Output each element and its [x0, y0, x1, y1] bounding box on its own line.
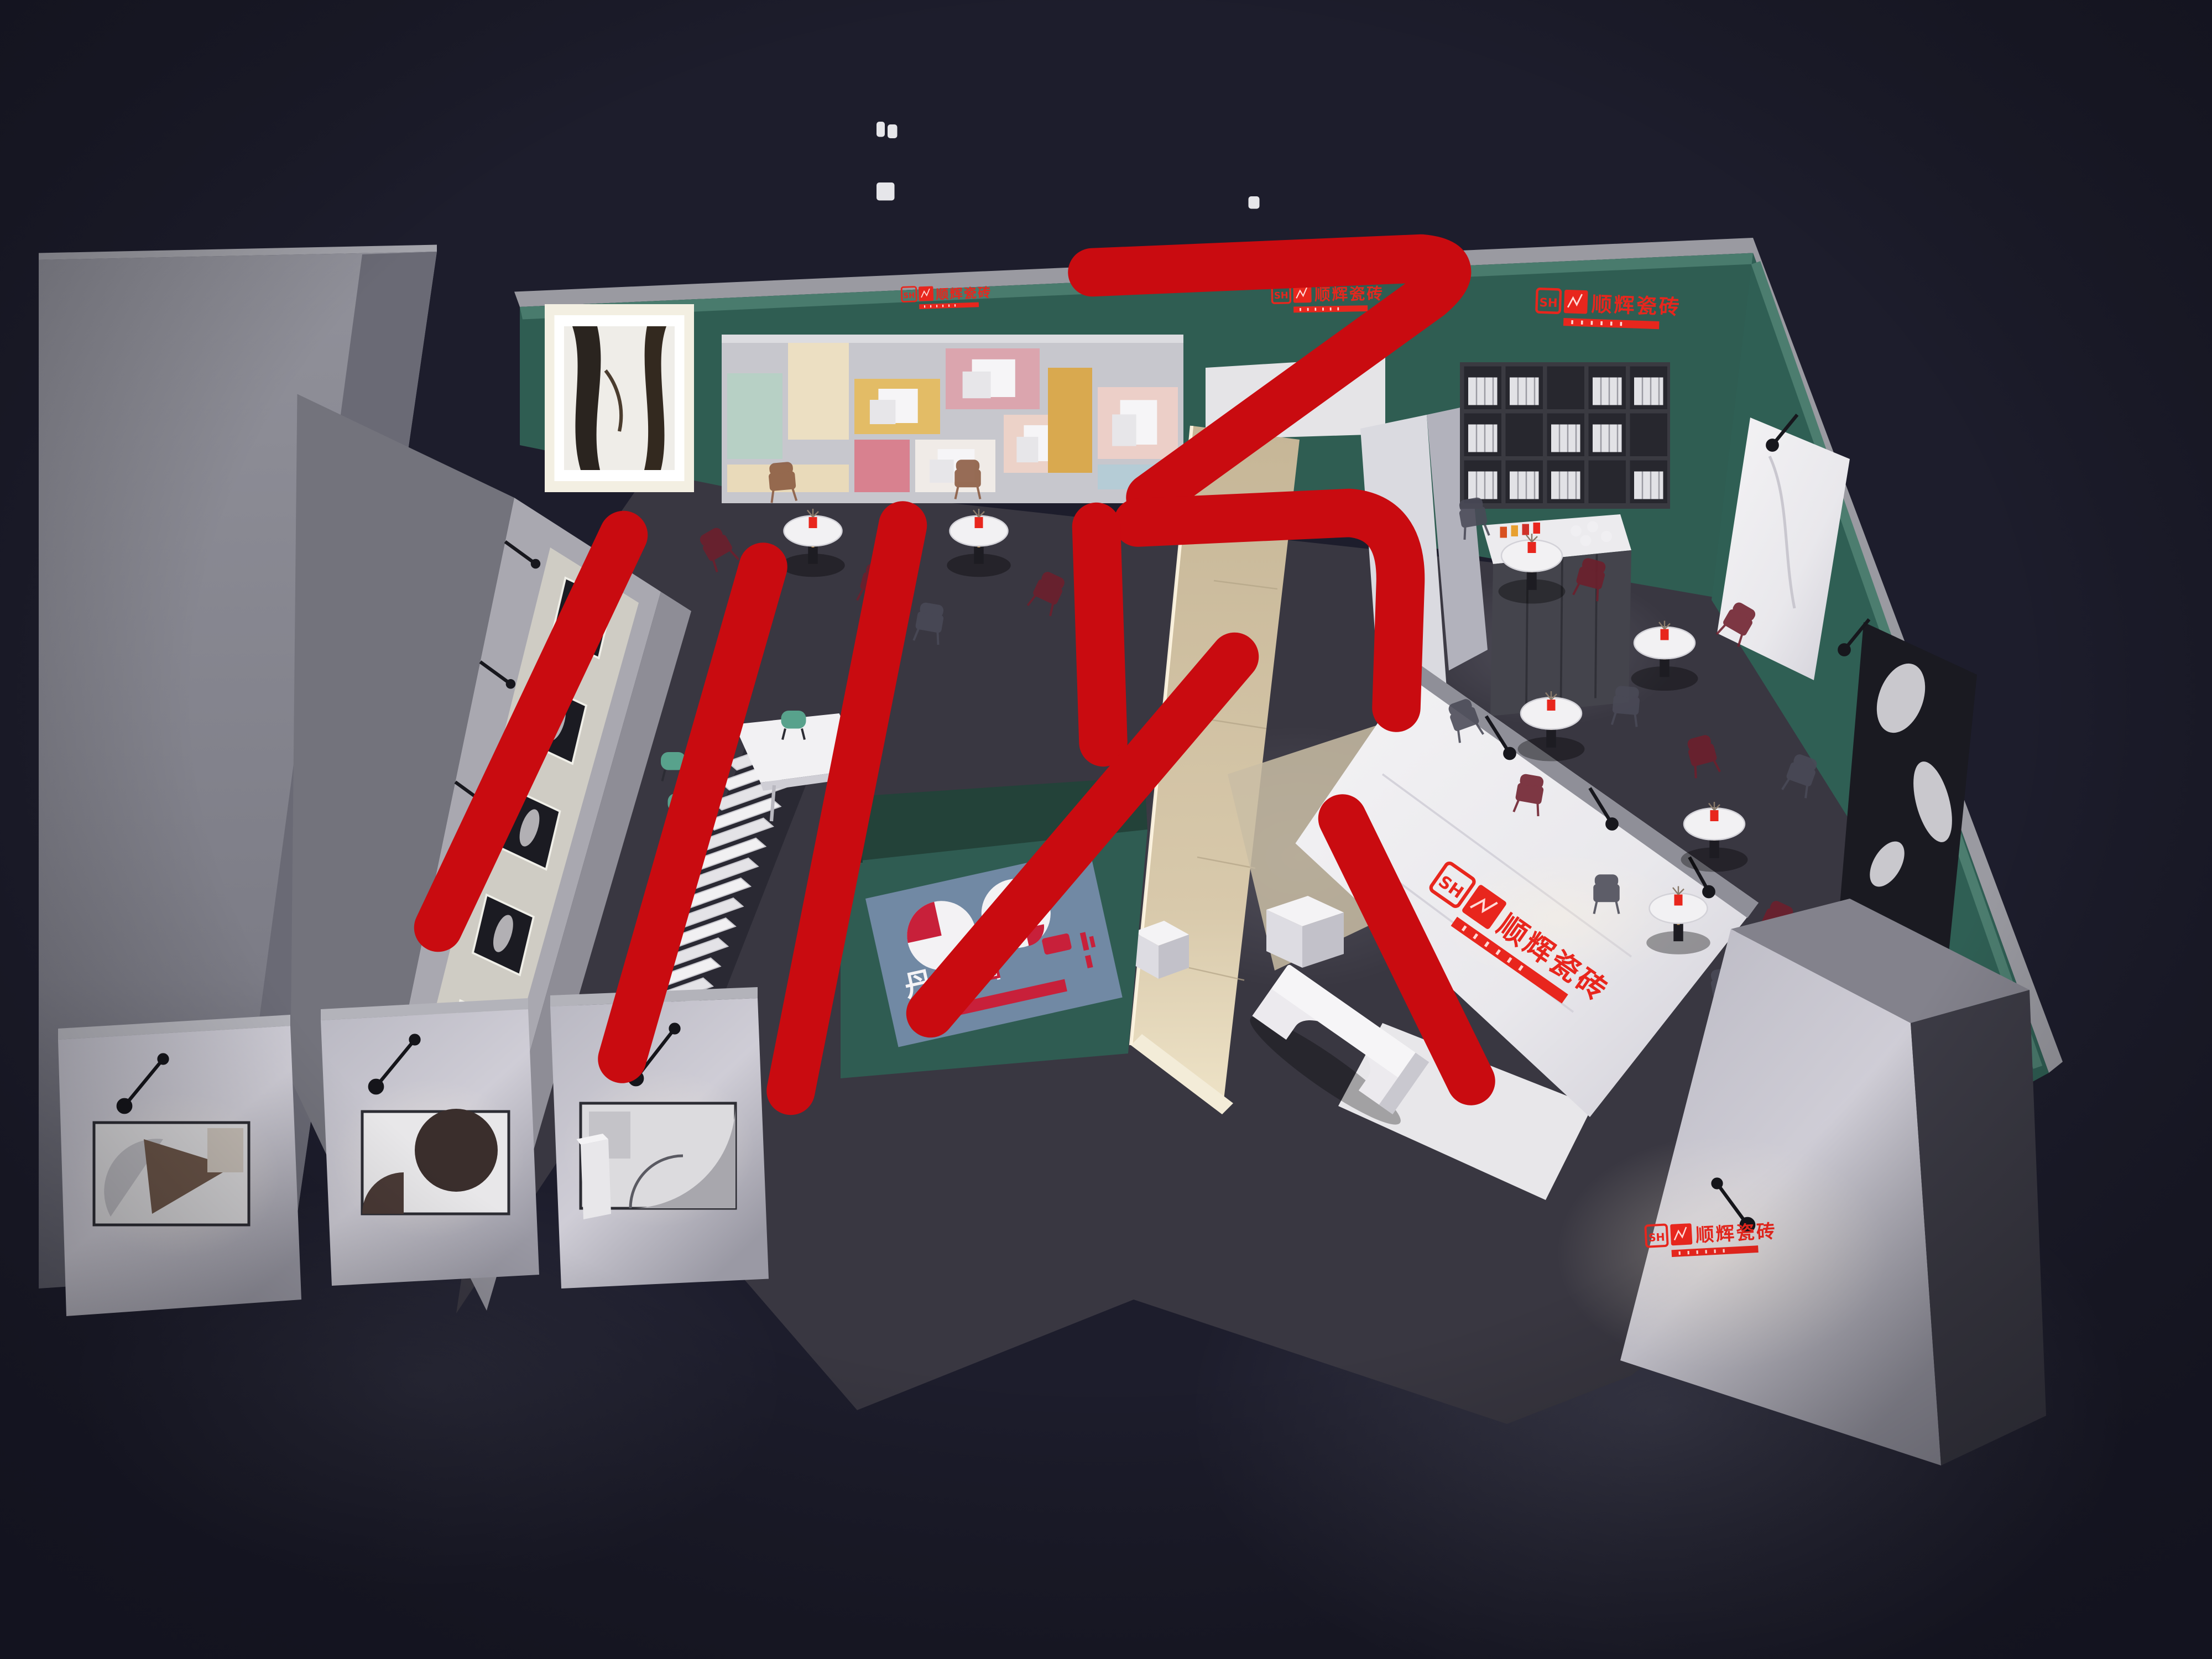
booth-render-canvas: SH 顺辉瓷砖 — [0, 0, 2212, 1659]
stroke-left-vertical — [1097, 527, 1104, 743]
